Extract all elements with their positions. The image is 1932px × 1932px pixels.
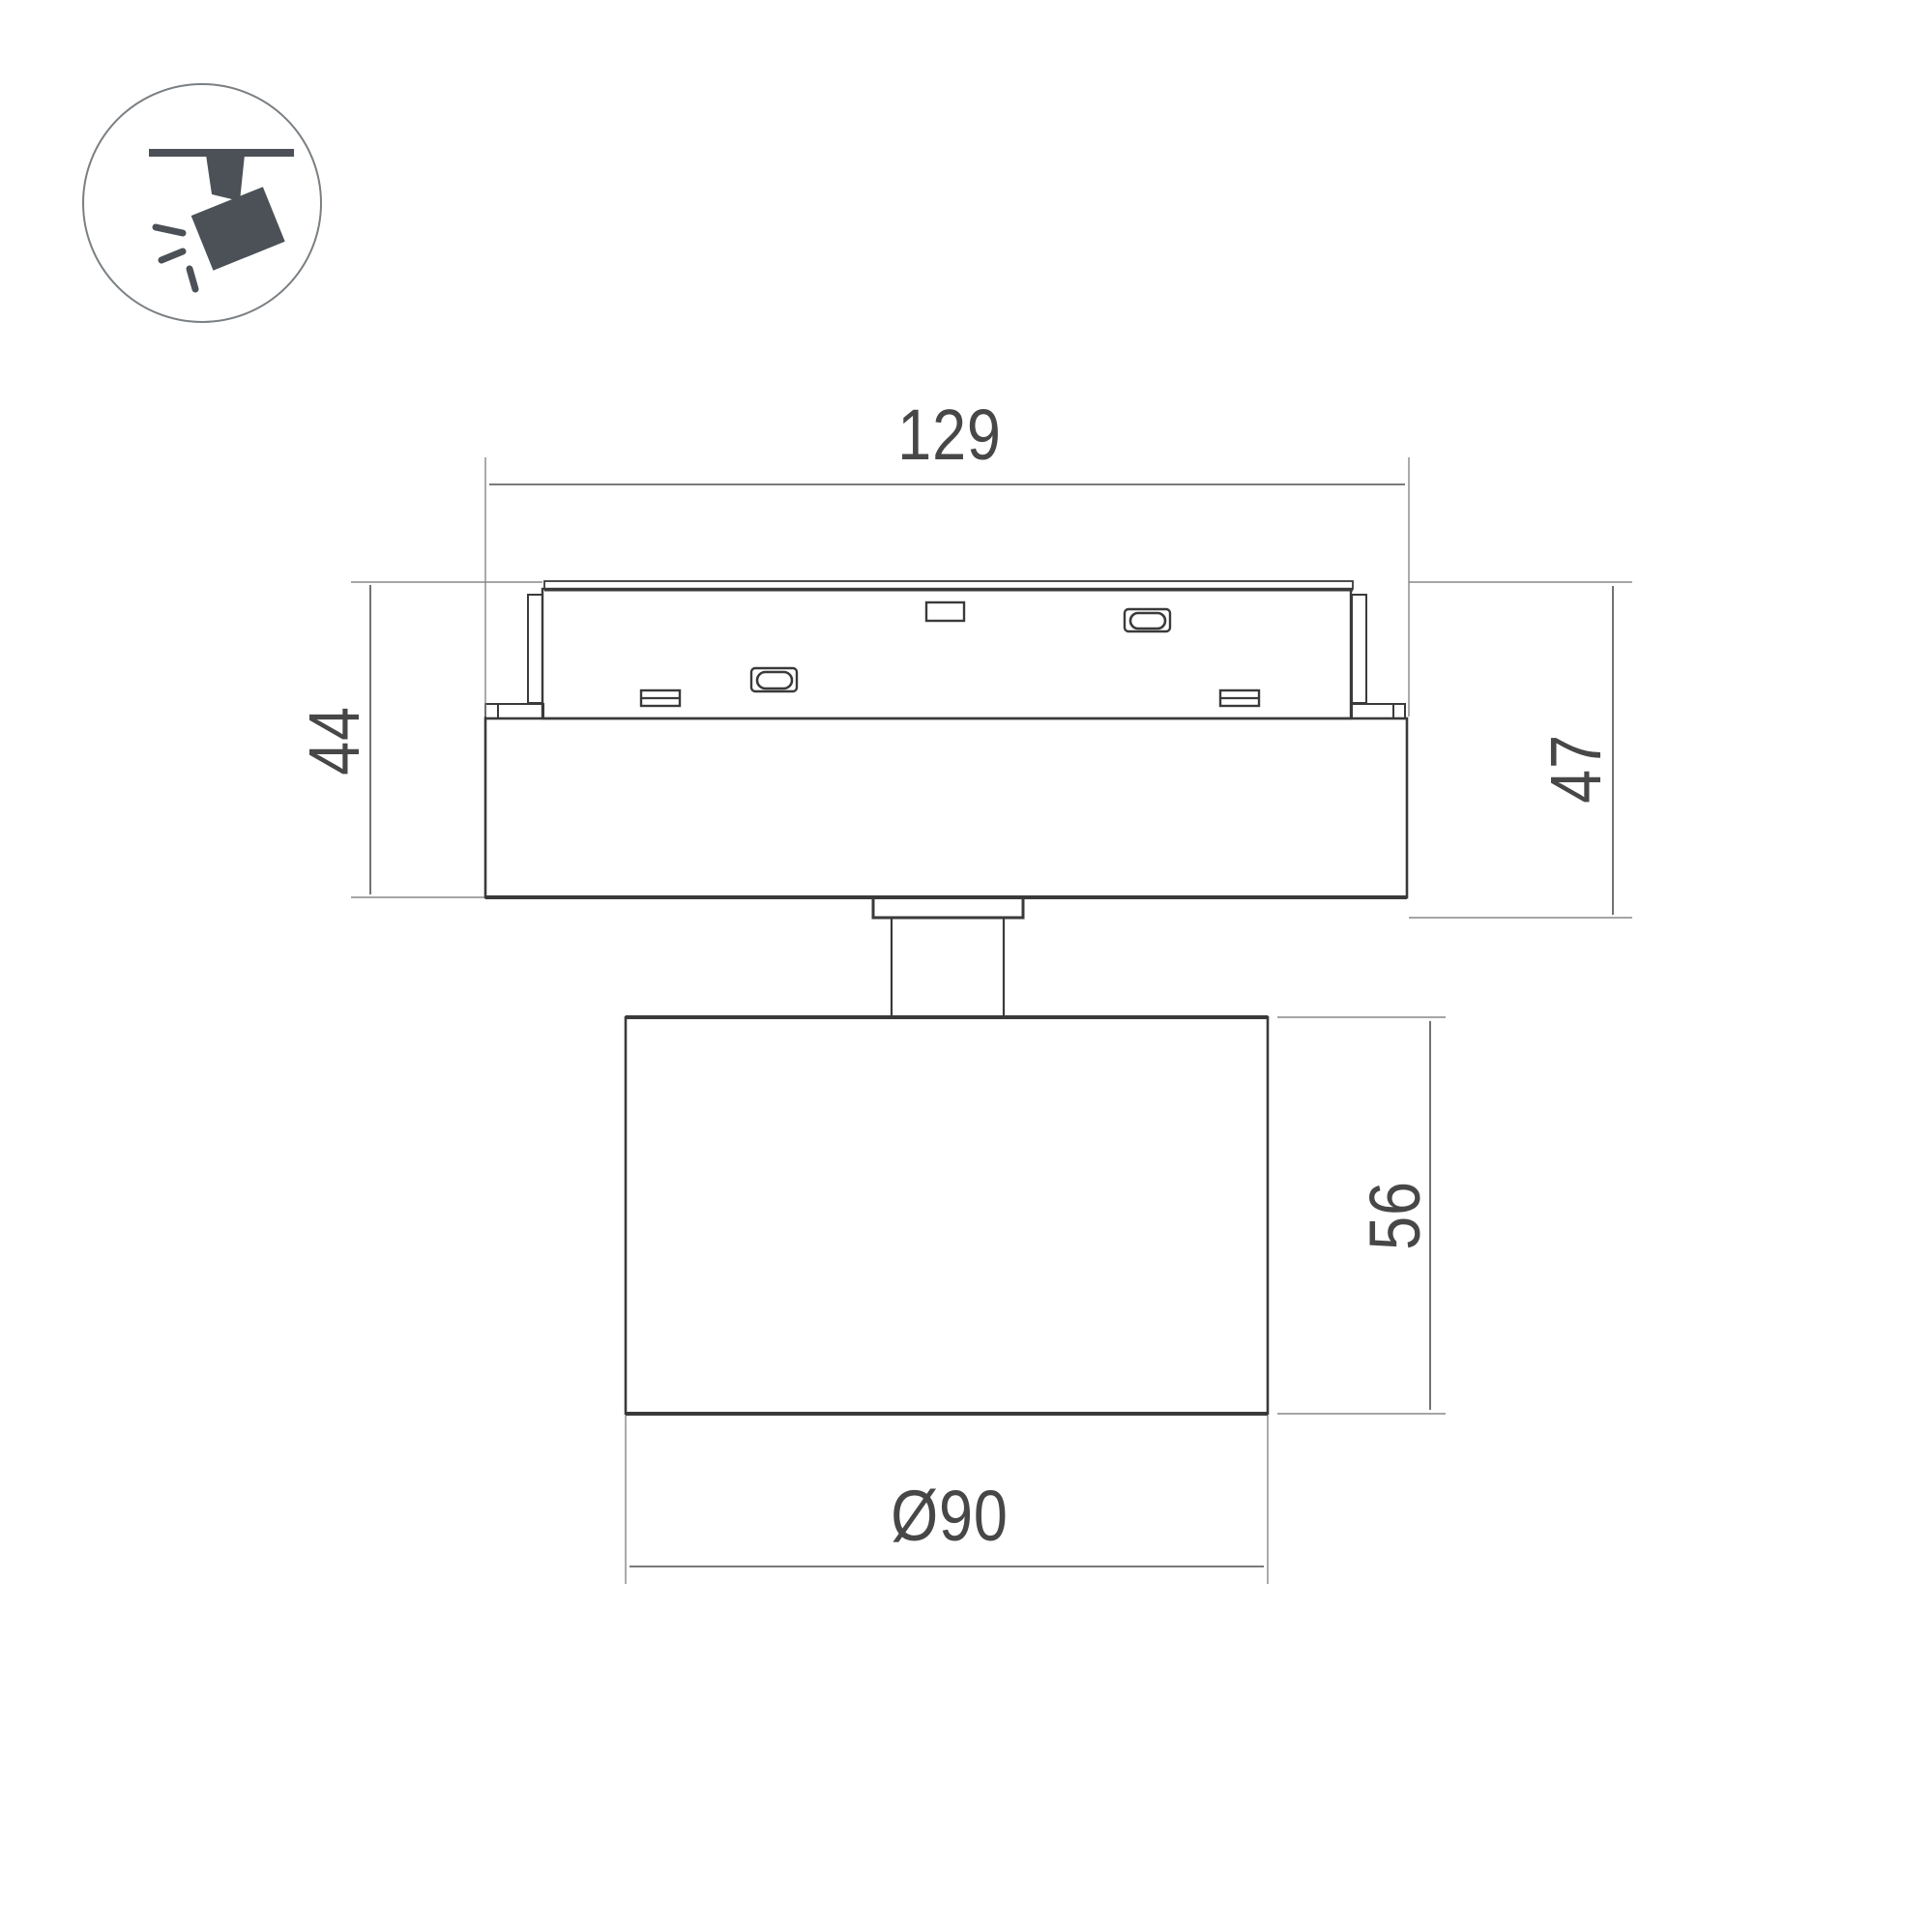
- dim-label-head-diameter: Ø90: [891, 1480, 1008, 1552]
- adapter-right-tab: [1352, 704, 1405, 718]
- adapter-lower-housing: [485, 718, 1407, 897]
- lamp-head-view: [626, 1017, 1268, 1414]
- dim-label-track-length: 129: [897, 399, 1001, 471]
- dim-label-adapter-height: 44: [299, 706, 370, 776]
- drawing-canvas: [0, 0, 1932, 1932]
- adapter-left-tab: [485, 704, 543, 718]
- track-adapter-view: [485, 581, 1407, 1016]
- track-spotlight-icon: [83, 84, 321, 322]
- pivot-collar: [873, 897, 1023, 918]
- dimension-129: [485, 457, 1409, 717]
- lamp-head-body: [626, 1017, 1268, 1414]
- dimension-44: [351, 582, 542, 897]
- slot-pill-right: [1130, 613, 1165, 629]
- dim-label-overall-drop: 47: [1540, 734, 1612, 804]
- slot-pill-left: [757, 672, 792, 688]
- icon-circle: [83, 84, 321, 322]
- icon-stem: [206, 155, 245, 201]
- adapter-top-plate: [544, 581, 1353, 589]
- technical-drawing-page: 129 44 47 56 Ø90: [0, 0, 1932, 1932]
- adapter-left-clip: [528, 595, 542, 703]
- adapter-right-clip: [1352, 595, 1366, 703]
- dim-label-head-height: 56: [1360, 1181, 1431, 1250]
- slot-rect-top-center: [926, 602, 964, 621]
